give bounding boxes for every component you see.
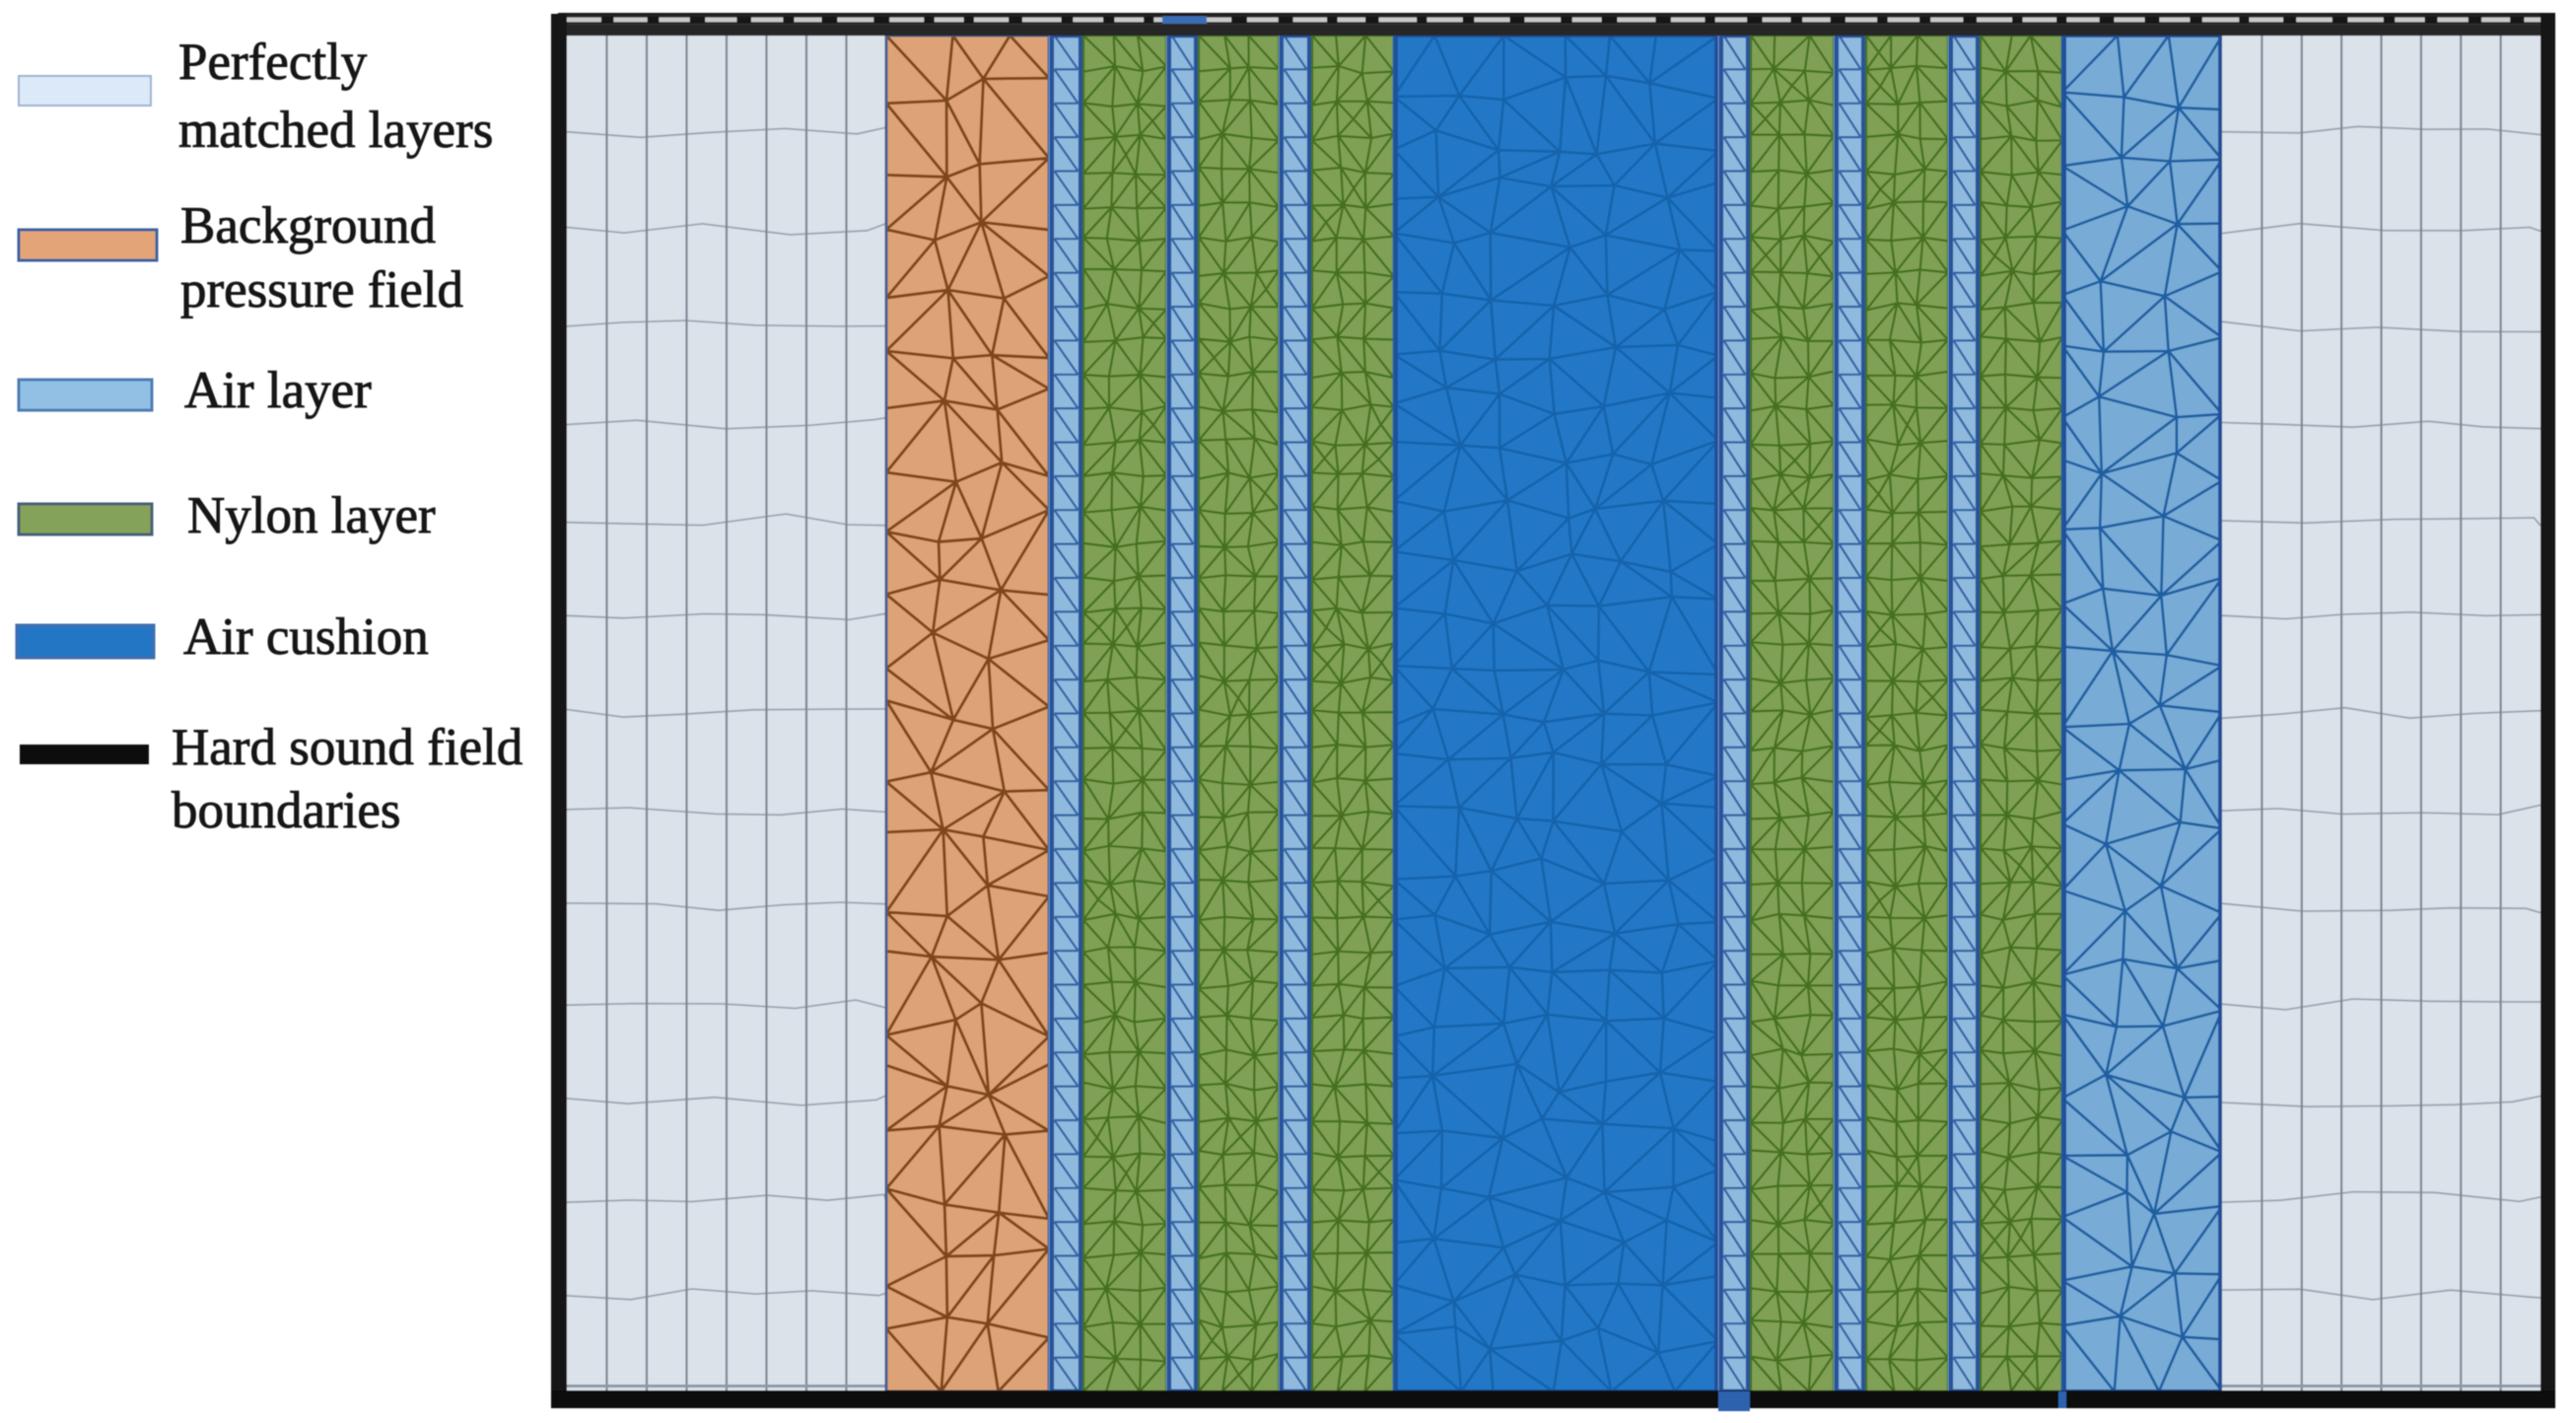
svg-text:Air layer: Air layer <box>184 362 372 419</box>
svg-text:boundaries: boundaries <box>172 782 401 839</box>
svg-text:matched layers: matched layers <box>178 102 493 159</box>
svg-text:Air cushion: Air cushion <box>183 608 429 666</box>
svg-text:Hard sound field: Hard sound field <box>172 719 522 776</box>
svg-text:Perfectly: Perfectly <box>178 34 368 91</box>
svg-text:Nylon layer: Nylon layer <box>187 487 436 544</box>
svg-text:Background: Background <box>180 197 436 254</box>
svg-text:pressure field: pressure field <box>180 261 463 319</box>
